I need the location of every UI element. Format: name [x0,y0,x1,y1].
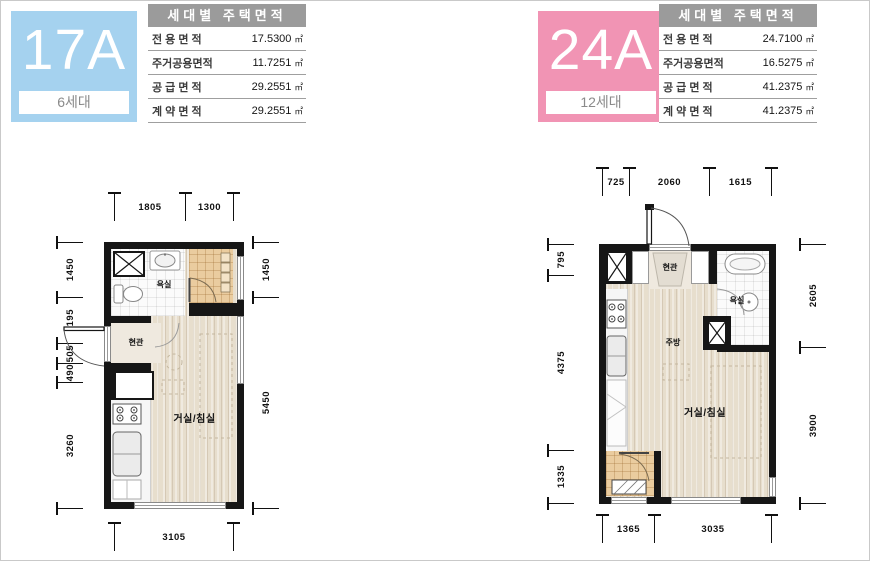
table-row: 전 용 면 적 17.5300 ㎡ [148,27,306,51]
dim-label: 5450 [261,391,272,414]
living-label: 거실/침실 [152,410,237,425]
entrance-label: 현관 [111,337,161,348]
area-table-title: 세대별 주택면적 [148,4,306,27]
dim-top-24a: 725 2060 1615 [602,168,772,196]
window [134,502,226,509]
entrance-door-gap [649,244,691,251]
entrance-door-gap [104,326,111,362]
dim-label: 1300 [186,193,234,221]
unit-code-17a: 17A [11,7,137,93]
bathroom-label: 욕실 [717,295,757,306]
dim-right-24a: 2605 3900 [800,244,826,504]
table-row: 계 약 면 적 41.2375 ㎡ [659,99,817,123]
dim-label: 1365 [602,515,655,543]
kitchen-zone [606,289,628,451]
dim-left-17a: 1450 1195 505 490 3260 [57,242,83,509]
closet-box [114,371,154,400]
table-row: 공 급 면 적 29.2551 ㎡ [148,75,306,99]
unit-households-24a: 12세대 [546,91,656,114]
table-row: 전 용 면 적 24.7100 ㎡ [659,27,817,51]
table-row: 주거공용면적 11.7251 ㎡ [148,51,306,75]
dim-label: 725 [602,168,630,196]
wall [189,303,237,316]
window [671,497,741,504]
dim-label: 795 [556,251,567,268]
living-label: 거실/침실 [659,404,751,419]
dim-label: 505 [65,345,76,362]
area-table-title: 세대별 주택면적 [659,4,817,27]
unit-badge-24a: 24A 12세대 [538,11,664,122]
closet-box [691,251,709,284]
dim-label: 2060 [630,168,710,196]
window [611,497,647,504]
balcony-zone [606,451,654,496]
dim-label: 1805 [114,193,186,221]
table-row: 계 약 면 적 29.2551 ㎡ [148,99,306,123]
closet-box [632,251,649,284]
dim-label: 1195 [65,309,76,332]
washer-box [606,251,628,283]
dim-label: 1450 [65,258,76,281]
closet-zone [189,249,233,303]
window [237,316,244,384]
kitchen-zone [111,400,151,502]
wall [654,451,661,497]
dim-bottom-17a: 3105 [114,523,234,551]
unit-badge-17a: 17A 6세대 [11,11,137,122]
bathroom-label: 욕실 [142,279,186,290]
floor-plan-24a: 현관 욕실 주방 거실/침실 [599,244,776,504]
dim-label: 3035 [655,515,772,543]
dim-label: 3260 [65,434,76,457]
dim-label: 1615 [710,168,772,196]
dim-label: 3900 [808,414,819,437]
table-row: 주거공용면적 16.5275 ㎡ [659,51,817,75]
closet-box [707,320,727,346]
entrance-label: 현관 [649,262,691,273]
area-table-24a: 세대별 주택면적 전 용 면 적 24.7100 ㎡ 주거공용면적 16.527… [659,4,817,123]
floor-plan-17a: 욕실 현관 거실/침실 [104,242,244,509]
dim-bottom-24a: 1365 3035 [602,515,772,543]
window [769,477,776,497]
dim-right-17a: 1450 5450 [253,242,279,509]
dim-label: 3105 [114,523,234,551]
unit-households-17a: 6세대 [19,91,129,114]
dim-top-17a: 1805 1300 [114,193,234,221]
table-row: 공 급 면 적 41.2375 ㎡ [659,75,817,99]
dim-label: 1335 [556,465,567,488]
window [237,256,244,300]
area-table-17a: 세대별 주택면적 전 용 면 적 17.5300 ㎡ 주거공용면적 11.725… [148,4,306,123]
dim-label: 2605 [808,284,819,307]
dim-left-24a: 795 4375 1335 [548,244,574,504]
kitchen-label: 주방 [651,337,695,348]
unit-code-24a: 24A [538,7,664,93]
dim-label: 4375 [556,351,567,374]
floorplan-sheet: 17A 6세대 세대별 주택면적 전 용 면 적 17.5300 ㎡ 주거공용면… [0,0,870,561]
dim-label: 490 [65,364,76,381]
dim-label: 1450 [261,258,272,281]
